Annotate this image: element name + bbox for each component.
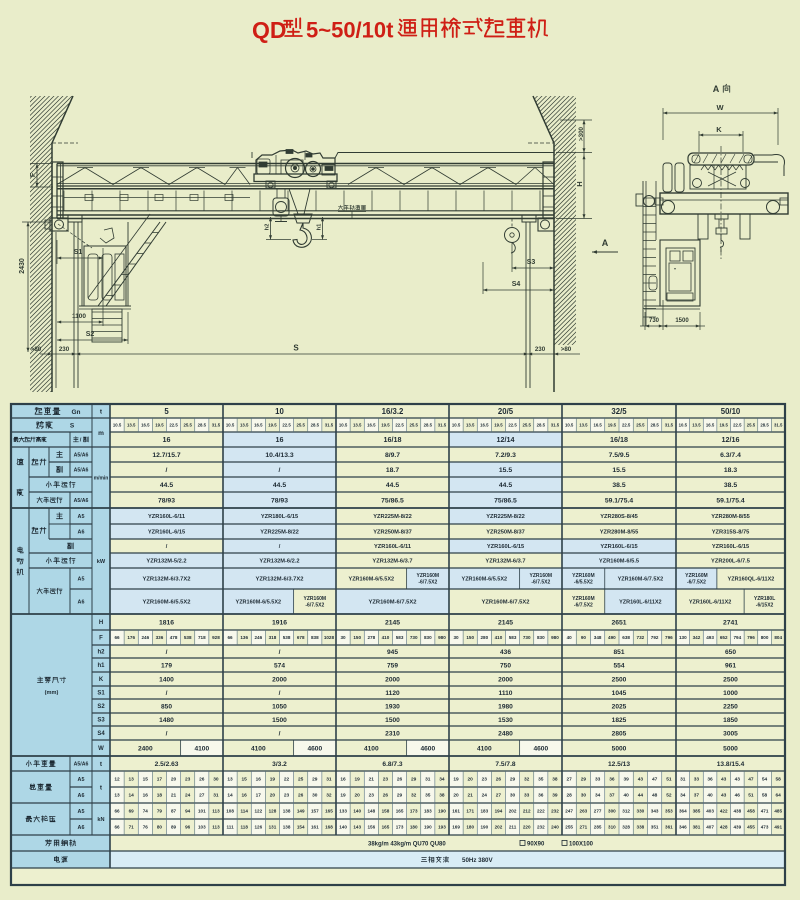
svg-text:YZR225M-8/22: YZR225M-8/22 bbox=[373, 514, 412, 520]
svg-text:111: 111 bbox=[226, 825, 234, 830]
svg-text:122: 122 bbox=[254, 809, 262, 814]
svg-text:44.5: 44.5 bbox=[386, 482, 399, 489]
svg-text:79: 79 bbox=[157, 809, 163, 814]
svg-text:16.5: 16.5 bbox=[706, 423, 715, 428]
svg-text:51: 51 bbox=[666, 777, 672, 783]
svg-text:31.5: 31.5 bbox=[212, 423, 221, 428]
svg-text:25.5: 25.5 bbox=[184, 423, 193, 428]
svg-text:792: 792 bbox=[651, 635, 659, 640]
svg-text:13.5: 13.5 bbox=[579, 423, 588, 428]
svg-text:232: 232 bbox=[551, 809, 559, 814]
svg-text:138: 138 bbox=[283, 809, 291, 814]
svg-text:1500: 1500 bbox=[675, 318, 689, 324]
svg-text:31.5: 31.5 bbox=[665, 423, 674, 428]
svg-text:168: 168 bbox=[325, 825, 333, 830]
svg-text:19.5: 19.5 bbox=[155, 423, 164, 428]
svg-text:180: 180 bbox=[466, 825, 474, 830]
svg-text:730: 730 bbox=[410, 635, 418, 640]
svg-text:3005: 3005 bbox=[723, 730, 738, 737]
svg-text:90: 90 bbox=[581, 635, 587, 640]
svg-text:23: 23 bbox=[482, 777, 488, 783]
svg-text:343: 343 bbox=[651, 809, 659, 814]
svg-text:22.5: 22.5 bbox=[395, 423, 404, 428]
svg-text:165: 165 bbox=[325, 809, 333, 814]
svg-text:485: 485 bbox=[774, 809, 782, 814]
svg-text:381: 381 bbox=[693, 825, 701, 830]
svg-text:YZR160M: YZR160M bbox=[685, 573, 708, 579]
svg-text:5~50/10t: 5~50/10t bbox=[306, 18, 394, 43]
svg-text:-6/7.5X2: -6/7.5X2 bbox=[531, 580, 550, 586]
svg-text:31.5: 31.5 bbox=[551, 423, 560, 428]
svg-text:403: 403 bbox=[706, 809, 714, 814]
svg-text:38: 38 bbox=[552, 777, 558, 783]
svg-text:S3: S3 bbox=[527, 259, 536, 266]
svg-text:136: 136 bbox=[240, 635, 248, 640]
svg-text:928: 928 bbox=[212, 635, 220, 640]
svg-text:28.5: 28.5 bbox=[760, 423, 769, 428]
svg-text:80: 80 bbox=[157, 825, 163, 830]
svg-text:78/93: 78/93 bbox=[158, 497, 175, 504]
svg-text:28: 28 bbox=[566, 793, 572, 799]
svg-text:2.5/2.63: 2.5/2.63 bbox=[155, 761, 179, 768]
svg-text:232: 232 bbox=[537, 825, 545, 830]
svg-text:114: 114 bbox=[240, 809, 248, 814]
svg-text:22: 22 bbox=[284, 777, 290, 783]
svg-text:1000: 1000 bbox=[723, 690, 738, 697]
svg-text:YZR160M-6/5.5X2: YZR160M-6/5.5X2 bbox=[142, 600, 190, 606]
svg-text:385: 385 bbox=[693, 809, 701, 814]
svg-text:20/5: 20/5 bbox=[498, 407, 514, 416]
svg-text:240: 240 bbox=[551, 825, 559, 830]
svg-text:K: K bbox=[716, 125, 722, 134]
svg-text:22.5: 22.5 bbox=[733, 423, 742, 428]
svg-text:34: 34 bbox=[595, 793, 601, 799]
svg-text:h1: h1 bbox=[97, 663, 105, 669]
svg-text:750: 750 bbox=[500, 662, 511, 669]
svg-text:37: 37 bbox=[609, 793, 615, 799]
svg-text:1400: 1400 bbox=[159, 676, 174, 683]
svg-text:12.5/13: 12.5/13 bbox=[608, 761, 630, 768]
svg-text:678: 678 bbox=[297, 635, 305, 640]
svg-text:20: 20 bbox=[355, 793, 361, 799]
svg-text:574: 574 bbox=[274, 662, 285, 669]
svg-text:S2: S2 bbox=[86, 331, 95, 338]
svg-text:kW: kW bbox=[97, 559, 106, 565]
svg-text:Gn: Gn bbox=[71, 409, 80, 416]
svg-text:27: 27 bbox=[496, 793, 502, 799]
svg-text:6.3/7.4: 6.3/7.4 bbox=[720, 452, 741, 459]
svg-text:66: 66 bbox=[115, 809, 121, 814]
svg-text:12.7/15.7: 12.7/15.7 bbox=[152, 452, 181, 459]
svg-text:58: 58 bbox=[762, 793, 768, 799]
svg-text:130: 130 bbox=[679, 635, 687, 640]
svg-text:90X90: 90X90 bbox=[527, 841, 545, 847]
svg-text:19.5: 19.5 bbox=[494, 423, 503, 428]
svg-text:37: 37 bbox=[694, 793, 700, 799]
svg-text:38kg/m 43kg/m QU70 QU80: 38kg/m 43kg/m QU70 QU80 bbox=[368, 841, 446, 847]
svg-text:13.5: 13.5 bbox=[466, 423, 475, 428]
svg-text:18: 18 bbox=[157, 793, 163, 799]
svg-text:YZR132M-5/2.2: YZR132M-5/2.2 bbox=[146, 559, 186, 565]
svg-text:165: 165 bbox=[382, 825, 390, 830]
svg-text:20: 20 bbox=[171, 777, 177, 783]
svg-text:150: 150 bbox=[353, 635, 361, 640]
svg-text:35: 35 bbox=[538, 777, 544, 783]
svg-text:23: 23 bbox=[185, 777, 191, 783]
svg-text:336: 336 bbox=[156, 635, 164, 640]
svg-text:31.5: 31.5 bbox=[325, 423, 334, 428]
svg-text:S2: S2 bbox=[97, 704, 105, 710]
svg-text:34: 34 bbox=[439, 777, 445, 783]
svg-text:A6: A6 bbox=[78, 825, 85, 831]
svg-text:176: 176 bbox=[127, 635, 135, 640]
svg-text:179: 179 bbox=[161, 662, 172, 669]
svg-text:650: 650 bbox=[725, 649, 736, 656]
svg-text:300: 300 bbox=[608, 809, 616, 814]
svg-text:48: 48 bbox=[652, 793, 658, 799]
svg-text:66: 66 bbox=[115, 825, 121, 830]
svg-text:202: 202 bbox=[495, 825, 503, 830]
svg-text:A6: A6 bbox=[78, 529, 85, 535]
svg-text:1980: 1980 bbox=[498, 703, 513, 710]
svg-text:44.5: 44.5 bbox=[160, 482, 173, 489]
svg-text:/: / bbox=[279, 730, 281, 737]
svg-text:36: 36 bbox=[707, 777, 713, 783]
svg-text:4100: 4100 bbox=[194, 745, 209, 752]
svg-text:113: 113 bbox=[212, 825, 220, 830]
svg-text:32: 32 bbox=[411, 793, 417, 799]
svg-text:A5/A6: A5/A6 bbox=[74, 467, 89, 473]
svg-text:1050: 1050 bbox=[272, 703, 287, 710]
svg-text:43: 43 bbox=[735, 777, 741, 783]
svg-text:19.5: 19.5 bbox=[268, 423, 277, 428]
svg-text:850: 850 bbox=[161, 703, 172, 710]
svg-text:20: 20 bbox=[270, 793, 276, 799]
svg-text:h2: h2 bbox=[97, 650, 105, 656]
svg-text:10: 10 bbox=[275, 407, 284, 416]
svg-text:1850: 1850 bbox=[723, 717, 738, 724]
svg-text:263: 263 bbox=[580, 809, 588, 814]
svg-text:12/14: 12/14 bbox=[497, 435, 515, 444]
svg-text:31: 31 bbox=[680, 777, 686, 783]
svg-text:638: 638 bbox=[622, 635, 630, 640]
svg-text:YZR132M-6/3.7X2: YZR132M-6/3.7X2 bbox=[255, 577, 303, 583]
svg-text:149: 149 bbox=[297, 809, 305, 814]
svg-text:43: 43 bbox=[721, 793, 727, 799]
svg-text:1120: 1120 bbox=[385, 690, 400, 697]
svg-text:2310: 2310 bbox=[385, 730, 400, 737]
svg-text:32: 32 bbox=[524, 777, 530, 783]
svg-text:538: 538 bbox=[283, 635, 291, 640]
svg-text:103: 103 bbox=[198, 825, 206, 830]
svg-text:A5: A5 bbox=[78, 777, 85, 783]
svg-text:YZR160M-6/7.5X2: YZR160M-6/7.5X2 bbox=[481, 600, 529, 606]
svg-text:17: 17 bbox=[157, 777, 163, 783]
svg-text:31.5: 31.5 bbox=[438, 423, 447, 428]
svg-text:21: 21 bbox=[468, 793, 474, 799]
svg-text:H: H bbox=[575, 181, 584, 186]
svg-text:19: 19 bbox=[270, 777, 276, 783]
svg-text:76: 76 bbox=[143, 825, 149, 830]
svg-text:20: 20 bbox=[453, 793, 459, 799]
svg-text:50/10: 50/10 bbox=[721, 407, 741, 416]
svg-text:": " bbox=[674, 268, 677, 274]
svg-text:980: 980 bbox=[551, 635, 559, 640]
svg-text:YZR280M-8/55: YZR280M-8/55 bbox=[600, 530, 639, 536]
svg-text:YZR225M-8/22: YZR225M-8/22 bbox=[260, 530, 299, 536]
svg-text:m/min: m/min bbox=[94, 475, 109, 481]
svg-text:796: 796 bbox=[665, 635, 673, 640]
svg-text:458: 458 bbox=[747, 809, 755, 814]
svg-text:1930: 1930 bbox=[385, 703, 400, 710]
svg-text:30: 30 bbox=[312, 793, 318, 799]
svg-text:471: 471 bbox=[761, 809, 769, 814]
svg-text:S1: S1 bbox=[74, 249, 83, 256]
svg-text:140: 140 bbox=[339, 825, 347, 830]
svg-text:75/86.5: 75/86.5 bbox=[381, 497, 404, 504]
svg-text:554: 554 bbox=[613, 662, 624, 669]
svg-text:730: 730 bbox=[649, 318, 660, 324]
svg-text:2145: 2145 bbox=[385, 619, 400, 626]
svg-text:33: 33 bbox=[694, 777, 700, 783]
svg-text:S4: S4 bbox=[97, 731, 105, 737]
svg-text:583: 583 bbox=[396, 635, 404, 640]
svg-text:(mm): (mm) bbox=[45, 690, 59, 696]
svg-text:12: 12 bbox=[114, 777, 120, 783]
svg-text:25.5: 25.5 bbox=[297, 423, 306, 428]
svg-text:16/3.2: 16/3.2 bbox=[382, 407, 404, 416]
svg-text:YZR160L-6/15: YZR160L-6/15 bbox=[600, 544, 637, 550]
svg-text:YZR160M: YZR160M bbox=[417, 573, 440, 579]
svg-text:230: 230 bbox=[535, 346, 546, 353]
svg-text:87: 87 bbox=[171, 809, 177, 814]
svg-text:-6/7.5X2: -6/7.5X2 bbox=[418, 580, 437, 586]
svg-text:YZR180L: YZR180L bbox=[754, 596, 775, 602]
svg-text:46: 46 bbox=[735, 793, 741, 799]
svg-text:40: 40 bbox=[567, 635, 573, 640]
svg-text:26: 26 bbox=[298, 793, 304, 799]
svg-text:101: 101 bbox=[198, 809, 206, 814]
svg-text:285: 285 bbox=[594, 825, 602, 830]
svg-text:15.5: 15.5 bbox=[499, 467, 512, 474]
svg-text:353: 353 bbox=[665, 809, 673, 814]
svg-text:YZR160L-6/11X2: YZR160L-6/11X2 bbox=[689, 599, 732, 605]
svg-text:K: K bbox=[99, 677, 104, 683]
svg-text:25.5: 25.5 bbox=[636, 423, 645, 428]
svg-text:A5/A6: A5/A6 bbox=[74, 761, 89, 767]
svg-text:59.1/75.4: 59.1/75.4 bbox=[605, 497, 634, 504]
svg-text:10.5: 10.5 bbox=[565, 423, 574, 428]
svg-text:YZR225M-8/22: YZR225M-8/22 bbox=[486, 514, 525, 520]
svg-text:-6/7.5X2: -6/7.5X2 bbox=[687, 580, 706, 586]
svg-text:29: 29 bbox=[581, 777, 587, 783]
svg-text:A6: A6 bbox=[78, 599, 85, 605]
svg-text:30: 30 bbox=[341, 635, 347, 640]
svg-text:173: 173 bbox=[396, 825, 404, 830]
svg-text:39: 39 bbox=[552, 793, 558, 799]
svg-text:1045: 1045 bbox=[612, 690, 627, 697]
svg-text:246: 246 bbox=[141, 635, 149, 640]
svg-text:13.8/15.4: 13.8/15.4 bbox=[717, 761, 745, 768]
svg-text:29: 29 bbox=[312, 777, 318, 783]
svg-text:24: 24 bbox=[185, 793, 191, 799]
svg-text:422: 422 bbox=[720, 809, 728, 814]
svg-text:193: 193 bbox=[438, 825, 446, 830]
svg-text:66: 66 bbox=[228, 635, 234, 640]
svg-text:126: 126 bbox=[254, 825, 262, 830]
svg-text:YZR160L-6/11X2: YZR160L-6/11X2 bbox=[619, 599, 662, 605]
svg-text:25.5: 25.5 bbox=[747, 423, 756, 428]
svg-text:28.5: 28.5 bbox=[198, 423, 207, 428]
svg-text:A5/A6: A5/A6 bbox=[74, 452, 89, 458]
svg-text:44: 44 bbox=[638, 793, 644, 799]
svg-text:255: 255 bbox=[565, 825, 573, 830]
svg-text:961: 961 bbox=[725, 662, 736, 669]
svg-text:75/86.5: 75/86.5 bbox=[494, 497, 517, 504]
svg-text:78/93: 78/93 bbox=[271, 497, 288, 504]
svg-text:43: 43 bbox=[721, 777, 727, 783]
svg-text:4100: 4100 bbox=[364, 745, 379, 752]
svg-text:YZR160M-6/5.5X2: YZR160M-6/5.5X2 bbox=[349, 576, 395, 582]
svg-text:19: 19 bbox=[340, 793, 346, 799]
svg-text:13: 13 bbox=[129, 777, 135, 783]
svg-text:21: 21 bbox=[171, 793, 177, 799]
svg-text:190: 190 bbox=[424, 825, 432, 830]
svg-text:28.5: 28.5 bbox=[650, 423, 659, 428]
svg-text:2250: 2250 bbox=[723, 703, 738, 710]
svg-text:2741: 2741 bbox=[723, 619, 738, 626]
svg-text:YZR160L-6/15: YZR160L-6/15 bbox=[148, 530, 185, 536]
svg-text:1110: 1110 bbox=[499, 690, 513, 697]
svg-text:13.5: 13.5 bbox=[127, 423, 136, 428]
svg-text:38.5: 38.5 bbox=[612, 482, 625, 489]
svg-text:YZR132M-6/3.7: YZR132M-6/3.7 bbox=[485, 559, 525, 565]
svg-text:74: 74 bbox=[143, 809, 149, 814]
svg-text:980: 980 bbox=[438, 635, 446, 640]
svg-text:29: 29 bbox=[510, 777, 516, 783]
svg-text:171: 171 bbox=[466, 809, 474, 814]
svg-text:1500: 1500 bbox=[272, 717, 287, 724]
svg-text:220: 220 bbox=[523, 825, 531, 830]
svg-text:22.5: 22.5 bbox=[508, 423, 517, 428]
svg-text:25.5: 25.5 bbox=[523, 423, 532, 428]
svg-text:10.5: 10.5 bbox=[339, 423, 348, 428]
svg-text:YZR160M: YZR160M bbox=[572, 596, 595, 602]
svg-text:kN: kN bbox=[97, 817, 104, 823]
svg-text:A: A bbox=[713, 84, 720, 94]
svg-text:4600: 4600 bbox=[307, 745, 322, 752]
svg-text:94: 94 bbox=[185, 809, 191, 814]
svg-text:>80: >80 bbox=[31, 346, 42, 353]
svg-text:280: 280 bbox=[480, 635, 488, 640]
svg-text:1825: 1825 bbox=[612, 717, 627, 724]
svg-text:1816: 1816 bbox=[159, 619, 174, 626]
svg-text:28.5: 28.5 bbox=[424, 423, 433, 428]
svg-text:4100: 4100 bbox=[477, 745, 492, 752]
svg-text:12/16: 12/16 bbox=[722, 435, 740, 444]
svg-text:27: 27 bbox=[199, 793, 205, 799]
svg-text:-6/7.5X2: -6/7.5X2 bbox=[305, 603, 324, 609]
svg-text:YZR160M-6/7.5X2: YZR160M-6/7.5X2 bbox=[618, 576, 664, 582]
svg-text:40: 40 bbox=[707, 793, 713, 799]
svg-text:33: 33 bbox=[595, 777, 601, 783]
svg-text:A5/A6: A5/A6 bbox=[74, 498, 89, 504]
svg-text:69: 69 bbox=[129, 809, 135, 814]
svg-text:150: 150 bbox=[466, 635, 474, 640]
svg-text:m: m bbox=[98, 430, 104, 437]
svg-text:113: 113 bbox=[212, 809, 220, 814]
svg-text:148: 148 bbox=[367, 809, 375, 814]
svg-text:30: 30 bbox=[510, 793, 516, 799]
svg-text:-6/7.5X2: -6/7.5X2 bbox=[574, 603, 593, 609]
svg-text:759: 759 bbox=[387, 662, 398, 669]
svg-text:S: S bbox=[70, 423, 75, 430]
svg-text:851: 851 bbox=[613, 649, 624, 656]
svg-text:718: 718 bbox=[198, 635, 206, 640]
svg-text:4600: 4600 bbox=[533, 745, 548, 752]
svg-text:34: 34 bbox=[680, 793, 686, 799]
svg-text:/: / bbox=[279, 690, 281, 697]
svg-text:31: 31 bbox=[326, 777, 332, 783]
svg-text:YZR132M-6/3.7X2: YZR132M-6/3.7X2 bbox=[142, 577, 190, 583]
svg-text:100X100: 100X100 bbox=[569, 841, 594, 847]
svg-text:/: / bbox=[166, 730, 168, 737]
svg-text:154: 154 bbox=[297, 825, 305, 830]
svg-text:491: 491 bbox=[774, 825, 782, 830]
svg-text:24: 24 bbox=[482, 793, 488, 799]
svg-text:5000: 5000 bbox=[723, 745, 738, 752]
svg-text:YZR200L-6/7.5: YZR200L-6/7.5 bbox=[711, 559, 750, 565]
svg-text:19.5: 19.5 bbox=[720, 423, 729, 428]
svg-text:YZR132M-6/3.7: YZR132M-6/3.7 bbox=[372, 559, 412, 565]
svg-text:222: 222 bbox=[537, 809, 545, 814]
svg-text:10.5: 10.5 bbox=[452, 423, 461, 428]
svg-text:4600: 4600 bbox=[420, 745, 435, 752]
svg-text:27: 27 bbox=[566, 777, 572, 783]
svg-text:455: 455 bbox=[747, 825, 755, 830]
svg-text:161: 161 bbox=[452, 809, 460, 814]
svg-text:W: W bbox=[716, 103, 724, 112]
svg-text:271: 271 bbox=[580, 825, 588, 830]
svg-text:/: / bbox=[166, 690, 168, 697]
svg-text:47: 47 bbox=[652, 777, 658, 783]
svg-text:211: 211 bbox=[509, 825, 517, 830]
svg-text:732: 732 bbox=[637, 635, 645, 640]
svg-text:6.8/7.3: 6.8/7.3 bbox=[382, 761, 402, 768]
svg-text:36: 36 bbox=[538, 793, 544, 799]
svg-text:2480: 2480 bbox=[498, 730, 513, 737]
svg-text:190: 190 bbox=[438, 809, 446, 814]
svg-text:51: 51 bbox=[748, 793, 754, 799]
svg-text:830: 830 bbox=[537, 635, 545, 640]
svg-text:YZR160L-6/11: YZR160L-6/11 bbox=[374, 544, 411, 550]
svg-text:19: 19 bbox=[355, 777, 361, 783]
svg-text:194: 194 bbox=[495, 809, 503, 814]
svg-text:312: 312 bbox=[622, 809, 630, 814]
svg-text:583: 583 bbox=[509, 635, 517, 640]
svg-text:/: / bbox=[279, 649, 281, 656]
svg-text:478: 478 bbox=[170, 635, 178, 640]
svg-text:16: 16 bbox=[256, 777, 262, 783]
svg-text:58: 58 bbox=[776, 777, 782, 783]
svg-text:YZR280S-8/45: YZR280S-8/45 bbox=[600, 514, 638, 520]
svg-text:16/18: 16/18 bbox=[610, 435, 628, 444]
svg-text:7.2/9.3: 7.2/9.3 bbox=[495, 452, 516, 459]
svg-text:YZR160M-6/7.5X2: YZR160M-6/7.5X2 bbox=[368, 600, 416, 606]
svg-text:23: 23 bbox=[369, 793, 375, 799]
svg-text:YZR132M-6/2.2: YZR132M-6/2.2 bbox=[259, 559, 299, 565]
svg-text:>80: >80 bbox=[561, 346, 572, 353]
